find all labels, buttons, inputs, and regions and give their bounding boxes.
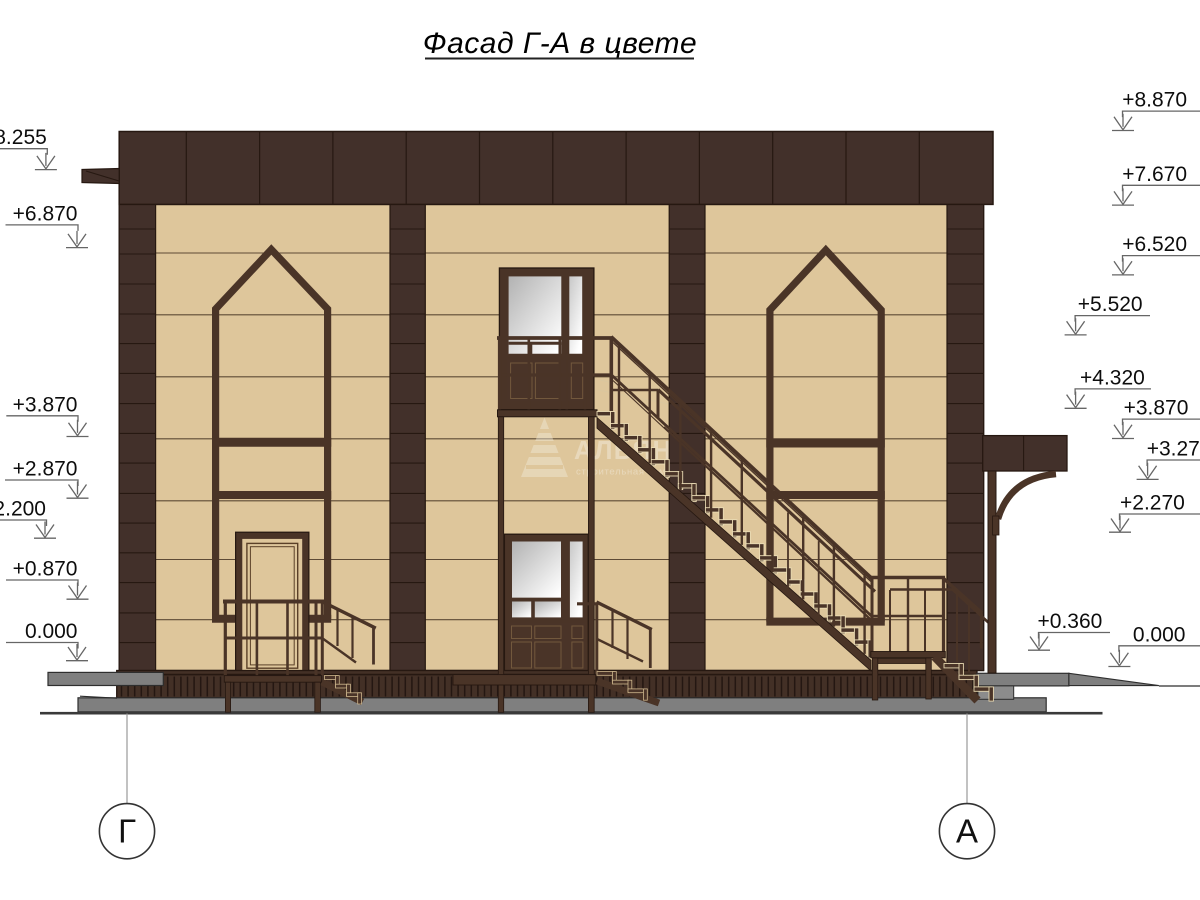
svg-text:0.000: 0.000 — [1133, 623, 1186, 646]
svg-text:+4.320: +4.320 — [1080, 366, 1145, 389]
svg-text:А: А — [956, 813, 978, 850]
svg-text:+3.870: +3.870 — [1124, 397, 1189, 420]
svg-text:+2.870: +2.870 — [13, 458, 78, 481]
svg-text:+0.360: +0.360 — [1038, 610, 1103, 633]
svg-text:+8.870: +8.870 — [1122, 89, 1187, 112]
svg-text:Фасад Г-А в цвете: Фасад Г-А в цвете — [423, 27, 697, 60]
svg-text:+0.870: +0.870 — [13, 558, 78, 581]
svg-text:+2.200: +2.200 — [0, 498, 46, 521]
svg-text:+3.870: +3.870 — [13, 393, 78, 416]
svg-text:+2.270: +2.270 — [1120, 492, 1185, 515]
svg-text:+6.520: +6.520 — [1122, 233, 1187, 256]
svg-text:0.000: 0.000 — [25, 620, 78, 643]
svg-text:+5.520: +5.520 — [1078, 293, 1143, 316]
svg-text:+8.255: +8.255 — [0, 126, 47, 149]
svg-text:+6.870: +6.870 — [13, 202, 78, 225]
svg-text:Г: Г — [118, 813, 136, 850]
svg-text:+3.270: +3.270 — [1147, 438, 1200, 461]
svg-text:+7.670: +7.670 — [1122, 163, 1187, 186]
